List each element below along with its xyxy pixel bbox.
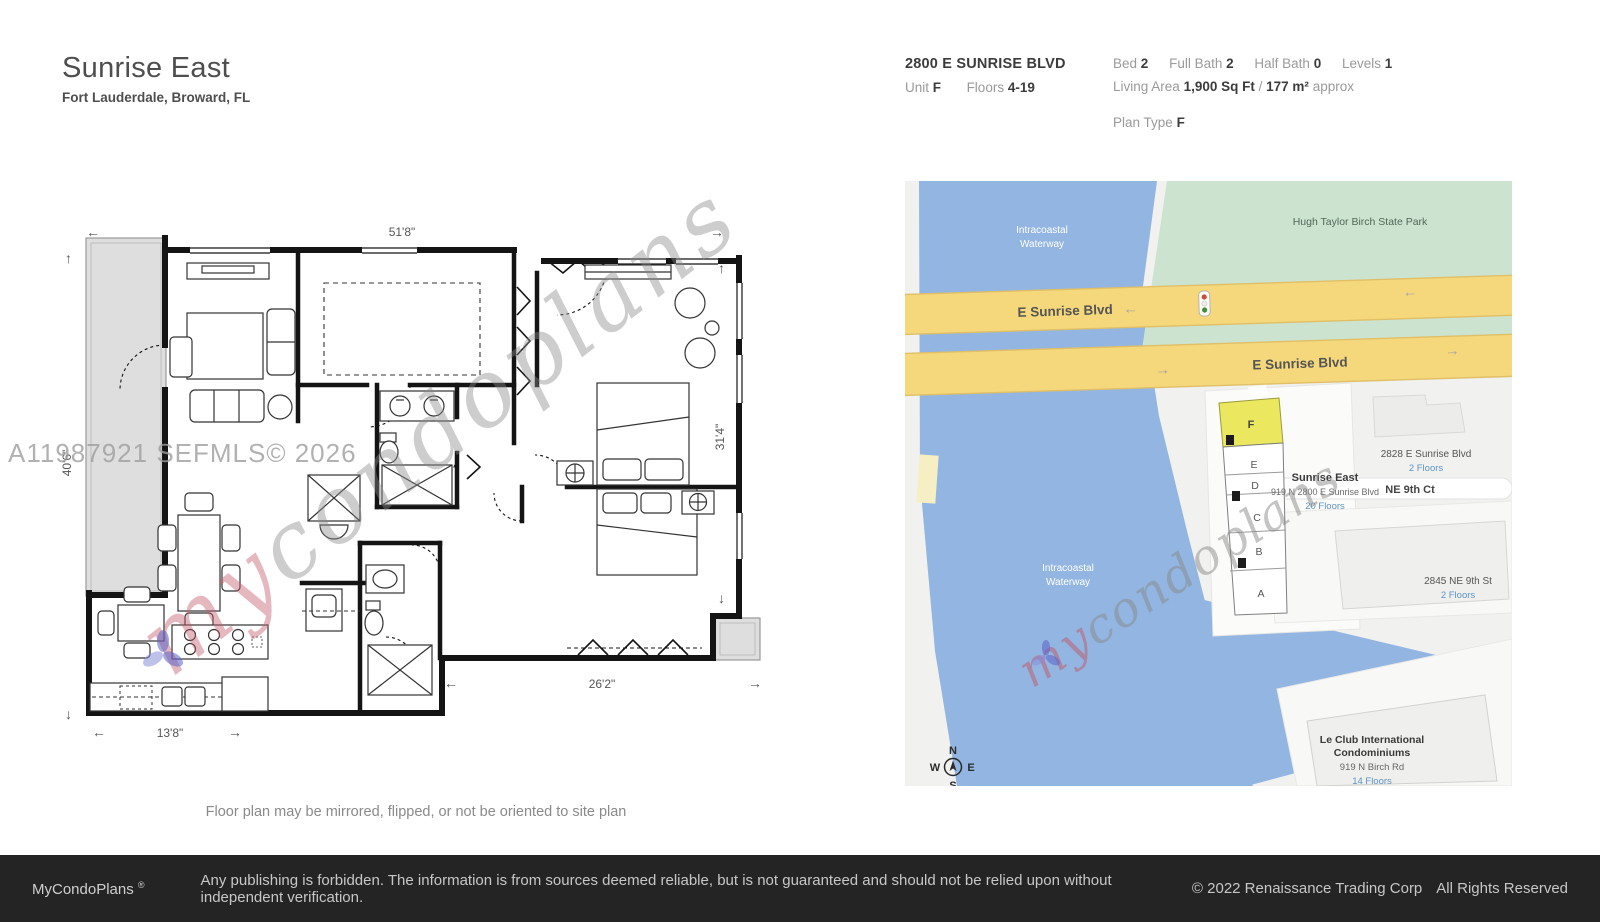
living-area-metric: 177 m² [1266,79,1309,94]
road-ne9ct-label: NE 9th Ct [1385,484,1435,496]
page: Sunrise East Fort Lauderdale, Broward, F… [0,0,1600,922]
living-area-divider: / [1259,79,1263,94]
bed-label: Bed [1113,56,1137,71]
footer-disclaimer: Any publishing is forbidden. The informa… [201,872,1168,906]
dim-br-arrow-right-icon: → [748,675,762,691]
water-label-bottom-2: Waterway [1046,577,1090,588]
unit-value: F [933,80,941,95]
footer-rights: All Rights Reserved [1436,880,1568,897]
dim-top-arrow-right-icon: → [710,225,724,240]
unit-label-f: F [1248,419,1255,431]
master-bedroom-furniture [557,265,719,485]
building-2845-floors: 2 Floors [1441,590,1476,601]
unit-label-c: C [1253,512,1261,524]
unit-label-e: E [1250,459,1257,471]
dim-bl-arrow-right-icon: → [228,724,242,740]
floor-plan: 51'8" ← → 40'6" ↑ ↓ 31'4" ↑ ↓ 26'2" ← → … [62,225,770,773]
bath2-fixtures [365,565,432,695]
leclub-floors: 14 Floors [1352,776,1392,786]
dim-bl-arrow-left-icon: ← [92,724,106,740]
utility-closet [308,475,360,539]
balcony-icon [715,618,760,660]
living-area-approx: approx [1313,79,1354,94]
page-title: Sunrise East [62,52,250,85]
building-2828-floors: 2 Floors [1409,463,1444,474]
leclub-name-2: Condominiums [1334,747,1411,759]
road-arrow-right-icon: → [1155,361,1171,378]
compass-n: N [949,745,957,757]
levels-value: 1 [1385,56,1393,71]
footer-copyright: © 2022 Renaissance Trading Corp [1192,880,1422,897]
dim-top: 51'8" [389,225,416,239]
stair-icon [1226,435,1234,445]
master-bath-fixtures [380,391,454,505]
subject-name: Sunrise East [1292,472,1359,484]
dim-bottom-left: 13'8" [157,726,184,740]
living-area-row: Living Area 1,900 Sq Ft / 177 m² approx [1113,79,1573,94]
dim-br-arrow-left-icon: ← [444,675,458,691]
bed-value: 2 [1141,56,1149,71]
dim-right-arrow-down-icon: ↓ [718,590,725,606]
leclub-name-1: Le Club International [1320,734,1425,746]
unit-floors-row: Unit F Floors 4-19 [905,80,1066,95]
footer: MyCondoPlans ® Any publishing is forbidd… [0,855,1600,922]
unit-label-a: A [1257,588,1264,600]
unit-label-b: B [1255,546,1262,558]
stair-icon [1232,491,1240,501]
living-area-label: Living Area [1113,79,1180,94]
plan-type-row: Plan Type F [1113,115,1573,130]
traffic-light-icon [1199,291,1211,316]
laundry-appliances [302,589,360,631]
subject-address: 919 N 2800 E Sunrise Blvd [1271,487,1379,497]
floors-value: 4-19 [1008,80,1035,95]
road-label-west: E Sunrise Blvd [1017,302,1113,320]
building-2828-label: 2828 E Sunrise Blvd [1381,449,1472,460]
dim-left-arrow-down-icon: ↓ [65,706,72,722]
road-label-east: E Sunrise Blvd [1252,355,1348,373]
dim-top-arrow-left-icon: ← [86,225,100,240]
dim-right-arrow-up-icon: ↑ [718,260,725,276]
full-bath-label: Full Bath [1169,56,1222,71]
map-yellow-parcel [916,454,938,503]
road-arrow-right2-icon: → [1444,342,1460,359]
site-map: E Sunrise Blvd ← ← E Sunrise Blvd → → NE… [905,181,1512,786]
floors-label: Floors [967,80,1005,95]
road-arrow-left2-icon: ← [1402,283,1418,300]
bedroom2-furniture [597,489,714,575]
dining-furniture [158,493,240,631]
page-subtitle: Fort Lauderdale, Broward, FL [62,90,250,105]
levels-label: Levels [1342,56,1381,71]
park-label: Hugh Taylor Birch State Park [1293,216,1428,228]
living-area-value: 1,900 Sq Ft [1184,79,1255,94]
plan-type-label: Plan Type [1113,115,1173,130]
kitchen-fixtures [90,625,268,711]
footer-brand-text: MyCondoPlans [32,881,134,898]
water-label-top-2: Waterway [1020,239,1064,250]
dim-left-arrow-up-icon: ↑ [65,250,72,266]
half-bath-value: 0 [1314,56,1322,71]
den-outline [324,283,480,375]
footer-brand: MyCondoPlans ® [32,880,145,898]
address-block: 2800 E SUNRISE BLVD Unit F Floors 4-19 [905,56,1066,95]
dim-bottom-right: 26'2" [589,677,616,691]
dim-left: 40'6" [62,450,74,477]
leclub-address: 919 N Birch Rd [1340,762,1404,773]
water-label-top-1: Intracoastal [1016,225,1068,236]
living-room-furniture [170,263,295,422]
subject-floors: 20 Floors [1305,501,1345,512]
terrace [86,238,166,596]
registered-mark: ® [138,880,145,890]
footer-copyright-block: © 2022 Renaissance Trading CorpAll Right… [1192,880,1568,897]
title-block: Sunrise East Fort Lauderdale, Broward, F… [62,52,250,105]
stats-row: Bed 2 Full Bath 2 Half Bath 0 Levels 1 [1113,56,1573,71]
specs-block: Bed 2 Full Bath 2 Half Bath 0 Levels 1 L… [1113,56,1573,130]
unit-label: Unit [905,80,929,95]
stair-icon [1238,558,1246,568]
half-bath-label: Half Bath [1254,56,1310,71]
building-2845-label: 2845 NE 9th St [1424,576,1492,587]
street-address: 2800 E SUNRISE BLVD [905,56,1066,72]
plan-type-value: F [1177,115,1185,130]
dim-right: 31'4" [713,424,727,451]
water-label-bottom-1: Intracoastal [1042,563,1094,574]
road-arrow-left-icon: ← [1123,300,1139,317]
compass-e: E [967,762,974,774]
compass-s: S [949,780,956,786]
full-bath-value: 2 [1226,56,1234,71]
unit-label-d: D [1251,480,1259,492]
compass-w: W [930,762,941,774]
building-2845-outline [1335,521,1509,609]
plan-caption: Floor plan may be mirrored, flipped, or … [62,804,770,820]
